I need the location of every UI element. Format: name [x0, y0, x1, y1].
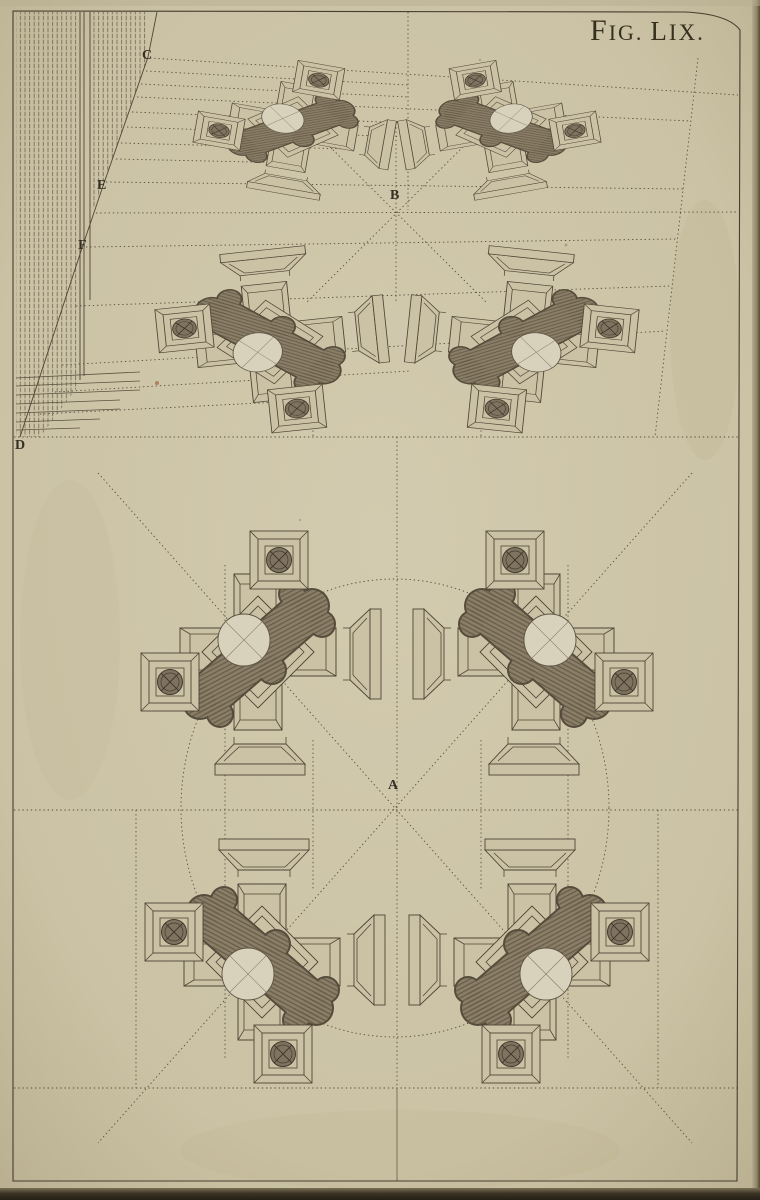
- ref-point-D: D: [15, 439, 25, 453]
- ref-point-F: F: [78, 239, 87, 253]
- ref-point-C: C: [142, 49, 152, 63]
- figure-title-part: IG.: [609, 20, 644, 45]
- page-edge-right: [752, 0, 760, 1200]
- page-edge-top: [0, 0, 760, 6]
- figure-title-part: L: [650, 16, 669, 46]
- figure-title: FIG.LIX.: [590, 14, 760, 48]
- figure-title-part: IX.: [669, 20, 705, 45]
- ref-point-E: E: [97, 179, 106, 193]
- ref-point-B: B: [390, 189, 399, 203]
- engraving-plate: FIG.LIX. C E F B D A: [0, 0, 760, 1200]
- figure-title-part: F: [590, 14, 609, 47]
- perspective-plan-drawing: [0, 0, 760, 1200]
- page-edge-bottom: [0, 1188, 760, 1200]
- ref-point-A: A: [388, 779, 398, 793]
